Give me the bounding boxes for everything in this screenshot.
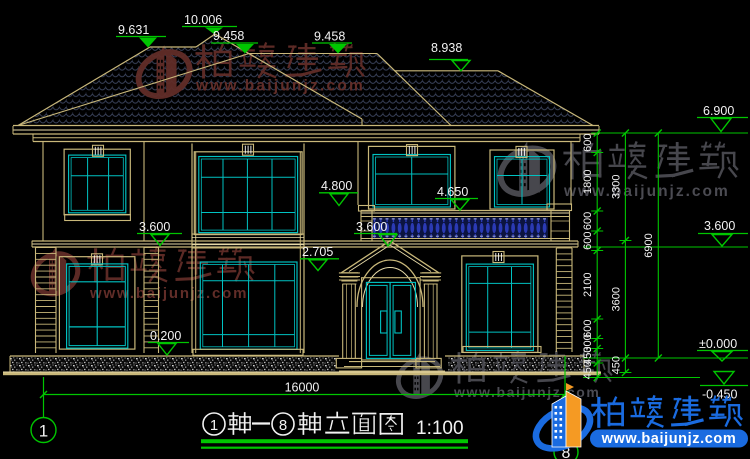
svg-text:1: 1 xyxy=(39,422,48,441)
svg-text:450: 450 xyxy=(611,356,623,374)
svg-text:600: 600 xyxy=(582,232,594,250)
svg-text:16000: 16000 xyxy=(285,381,320,395)
svg-text:www.baijunjz.com: www.baijunjz.com xyxy=(195,78,365,95)
svg-text:8.938: 8.938 xyxy=(431,41,462,55)
svg-text:6900: 6900 xyxy=(643,233,655,257)
svg-text:±0.000: ±0.000 xyxy=(699,337,737,351)
svg-text:8: 8 xyxy=(279,417,287,434)
svg-text:-0.450: -0.450 xyxy=(702,388,737,402)
svg-text:1800: 1800 xyxy=(582,170,594,194)
svg-text:1: 1 xyxy=(210,417,218,434)
svg-text:10.006: 10.006 xyxy=(184,13,222,27)
svg-text:3.600: 3.600 xyxy=(139,220,170,234)
svg-text:4.650: 4.650 xyxy=(437,185,468,199)
svg-text:450: 450 xyxy=(582,361,594,379)
svg-text:600: 600 xyxy=(582,134,594,152)
svg-text:600: 600 xyxy=(582,212,594,230)
svg-text:9.631: 9.631 xyxy=(118,23,149,37)
svg-text:2.705: 2.705 xyxy=(302,245,333,259)
svg-text:www.baijunjz.com: www.baijunjz.com xyxy=(89,285,248,302)
svg-text:3300: 3300 xyxy=(611,175,623,199)
svg-text:3.600: 3.600 xyxy=(356,220,387,234)
svg-text:9.458: 9.458 xyxy=(314,30,345,44)
svg-text:2100: 2100 xyxy=(582,273,594,297)
svg-text:www.baijunjz.com: www.baijunjz.com xyxy=(601,431,737,447)
svg-text:3.600: 3.600 xyxy=(704,219,735,233)
svg-text:1:100: 1:100 xyxy=(416,418,464,439)
svg-text:4.800: 4.800 xyxy=(321,179,352,193)
svg-text:0.200: 0.200 xyxy=(150,329,181,343)
svg-text:6.900: 6.900 xyxy=(703,104,734,118)
svg-text:9.458: 9.458 xyxy=(213,29,244,43)
svg-text:3600: 3600 xyxy=(611,287,623,311)
